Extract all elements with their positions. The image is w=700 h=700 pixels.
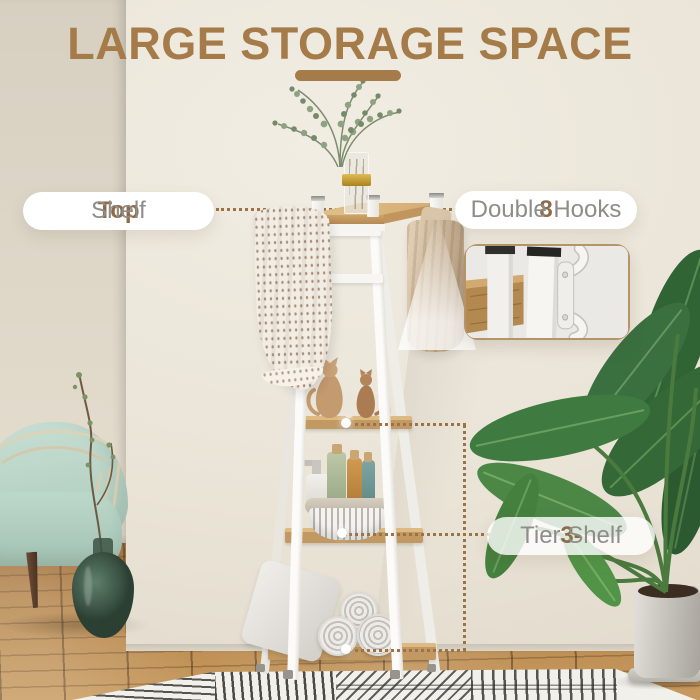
double-hook-illustration [466, 246, 628, 338]
dotted-connector-vertical [463, 424, 466, 652]
rack-foot [390, 670, 400, 679]
dotted-connector-tier3 [348, 649, 466, 652]
callout-top-shelf: Top Shelf [23, 192, 214, 230]
dotted-connector-tier2 [344, 533, 490, 536]
callout-double-hooks-text: Double Hooks [471, 196, 622, 224]
bottle-cork [364, 452, 372, 462]
bottle-cork [350, 450, 359, 460]
vase-highlight [84, 566, 92, 606]
branch-in-vase [55, 345, 130, 560]
rug-stripe-block [336, 682, 617, 690]
shelf-marker-dot [337, 528, 347, 538]
product-infographic: Top Shelf 8 Double Hooks [0, 0, 700, 700]
callout-tier-shelf-text: Tier Shelf [520, 522, 622, 550]
hook-detail-card [464, 244, 630, 340]
page-title: LARGE STORAGE SPACE [0, 18, 700, 70]
rack-foot [283, 670, 293, 679]
callout-double-hooks: 8 Double Hooks [455, 191, 637, 229]
shelf-marker-dot [341, 644, 351, 654]
callout-tier-shelf: 3-Tier Shelf [487, 517, 655, 555]
rack-foot [256, 664, 265, 672]
dotted-connector-tier1 [348, 423, 466, 426]
bottle-cork [332, 444, 342, 454]
rack-foot [427, 664, 436, 672]
title-underline [295, 70, 401, 81]
hook-closeup-image [466, 246, 628, 338]
callout-top-shelf-text: Shelf [91, 197, 146, 225]
shelf-marker-dot [341, 418, 351, 428]
eucalyptus-branches [266, 72, 414, 167]
vase-gold-band [342, 174, 371, 186]
